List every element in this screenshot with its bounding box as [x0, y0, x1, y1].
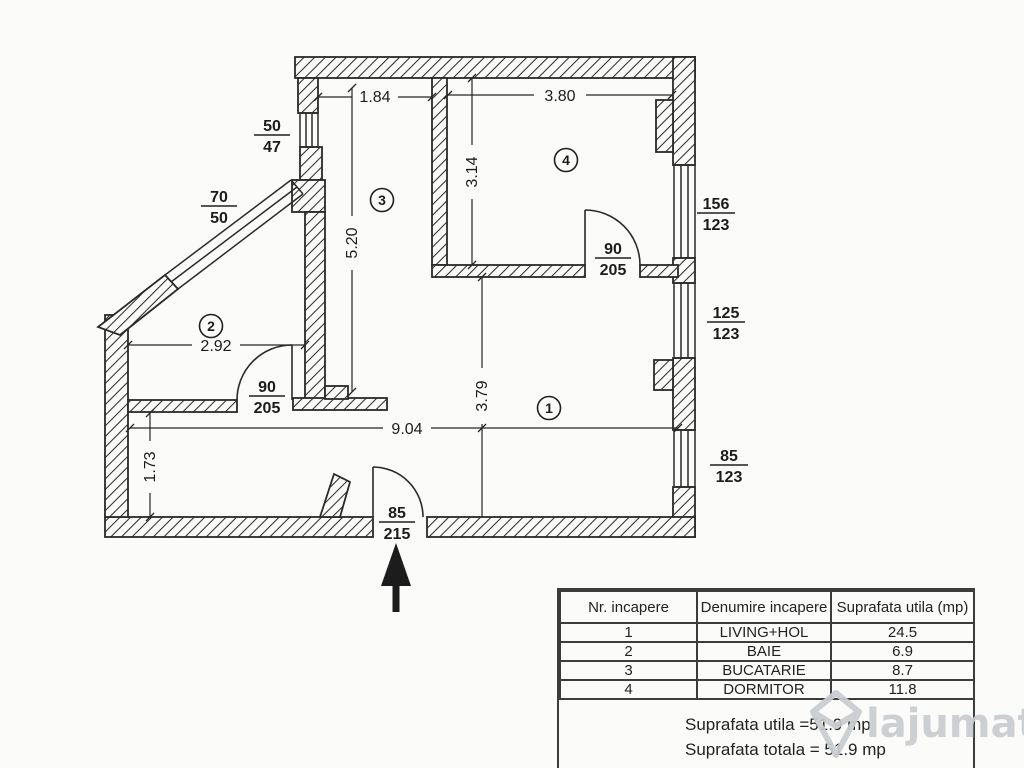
dim-label-living-width: 9.04: [391, 421, 422, 438]
window-85-123: [674, 430, 695, 487]
cell-name: BAIE: [697, 642, 831, 661]
wall-bottom-left: [105, 517, 373, 537]
col-header-suprafata: Suprafata utila (mp): [831, 591, 974, 623]
window-50-47: [300, 113, 318, 147]
opening-height: 123: [713, 326, 740, 343]
wall-diagonal-lower: [98, 275, 178, 335]
window-pane-line: [165, 180, 291, 275]
watermark: lajumate.ro: [808, 688, 1024, 760]
wall-top: [295, 57, 695, 78]
opening-height: 205: [254, 400, 281, 417]
wall-kitchen-left-mid: [300, 147, 322, 180]
cell-name: BUCATARIE: [697, 661, 831, 680]
cell-nr: 3: [560, 661, 697, 680]
wall-left: [105, 315, 128, 517]
opening-width: 125: [713, 305, 740, 322]
opening-height: 50: [210, 210, 228, 227]
dim-ticks: [124, 74, 682, 521]
table-header-row: Nr. incapere Denumire incapere Suprafata…: [560, 591, 974, 623]
wall-pilaster-mid-right: [654, 360, 673, 390]
wall-entry-stub: [320, 474, 350, 517]
table-row: 3 BUCATARIE 8.7: [560, 661, 974, 680]
cell-mp: 24.5: [831, 623, 974, 642]
opening-height: 123: [716, 469, 743, 486]
watermark-brand: lajumate: [866, 701, 1024, 747]
windows: [165, 113, 695, 487]
opening-width: 90: [258, 379, 276, 396]
cell-nr: 4: [560, 680, 697, 699]
cell-mp: 6.9: [831, 642, 974, 661]
label-window-125-123: 125 123: [707, 305, 745, 343]
opening-height: 205: [600, 262, 627, 279]
opening-width: 85: [720, 448, 738, 465]
wall-right-upper: [673, 57, 695, 165]
label-door-entry: 85 215: [379, 505, 415, 543]
label-door-bedroom: 90 205: [595, 241, 631, 279]
opening-height: 47: [263, 139, 281, 156]
wall-bath-step: [325, 386, 348, 399]
walls: [98, 57, 695, 537]
opening-height: 123: [703, 217, 730, 234]
scanned-floorplan-page: 1.84 3.80 3.14 5.20 3.79 2.92 9.04 1.73 …: [0, 0, 1024, 768]
table-row: 2 BAIE 6.9: [560, 642, 974, 661]
arrow-head: [381, 543, 411, 586]
opening-width: 156: [703, 196, 730, 213]
label-window-156-123: 156 123: [697, 196, 735, 234]
opening-width: 85: [388, 505, 406, 522]
label-door-bath: 90 205: [249, 379, 285, 417]
dim-label-kitchen-width: 1.84: [359, 89, 390, 106]
cell-name: LIVING+HOL: [697, 623, 831, 642]
opening-width: 50: [263, 118, 281, 135]
room-badges: 1 2 3 4: [200, 149, 578, 420]
room-1-number: 1: [545, 400, 553, 416]
entrance-arrow-icon: [381, 543, 411, 612]
dim-label-living-height: 3.79: [474, 380, 491, 411]
window-pane-line: [178, 194, 303, 289]
table-row: 1 LIVING+HOL 24.5: [560, 623, 974, 642]
wall-bath-right: [305, 212, 325, 400]
opening-width: 90: [604, 241, 622, 258]
wall-kitchen-jog: [292, 180, 325, 212]
label-window-70-50: 70 50: [201, 189, 237, 227]
wall-bottom-right: [427, 517, 695, 537]
wall-pilaster-top-right: [656, 100, 673, 152]
dim-label-bath-width: 2.92: [200, 338, 231, 355]
room-3-number: 3: [378, 192, 386, 208]
wall-bedroom-bottom-right: [640, 265, 678, 277]
arrow-stem: [393, 586, 400, 612]
dim-label-hall-height: 1.73: [142, 451, 159, 482]
dim-label-kitchen-height: 5.20: [344, 227, 361, 258]
dimension-lines: 1.84 3.80 3.14 5.20 3.79 2.92 9.04 1.73: [124, 74, 682, 521]
wall-bedroom-bottom-left: [432, 265, 585, 277]
wall-bath-bottom-left: [128, 400, 237, 412]
label-window-50-47: 50 47: [254, 118, 290, 156]
opening-height: 215: [384, 526, 411, 543]
wall-right-mid-b: [673, 358, 695, 430]
wall-kitchen-left-upper: [298, 78, 318, 113]
col-header-nr: Nr. incapere: [560, 591, 697, 623]
wall-kitchen-bedroom-divider: [432, 78, 447, 265]
room-2-number: 2: [207, 318, 215, 334]
cell-mp: 8.7: [831, 661, 974, 680]
col-header-denumire: Denumire incapere: [697, 591, 831, 623]
opening-width: 70: [210, 189, 228, 206]
window-125-123: [674, 283, 695, 358]
dim-label-bedroom-height: 3.14: [464, 156, 481, 187]
lajumate-gem-icon: [808, 688, 864, 760]
room-area-table: Nr. incapere Denumire incapere Suprafata…: [559, 590, 975, 700]
cell-nr: 2: [560, 642, 697, 661]
label-window-85-123: 85 123: [710, 448, 748, 486]
window-156-123: [674, 165, 695, 258]
cell-nr: 1: [560, 623, 697, 642]
window-70-50-diagonal: [165, 180, 303, 289]
dim-label-bedroom-width: 3.80: [544, 88, 575, 105]
room-4-number: 4: [562, 152, 570, 168]
window-pane-line: [171, 187, 297, 282]
